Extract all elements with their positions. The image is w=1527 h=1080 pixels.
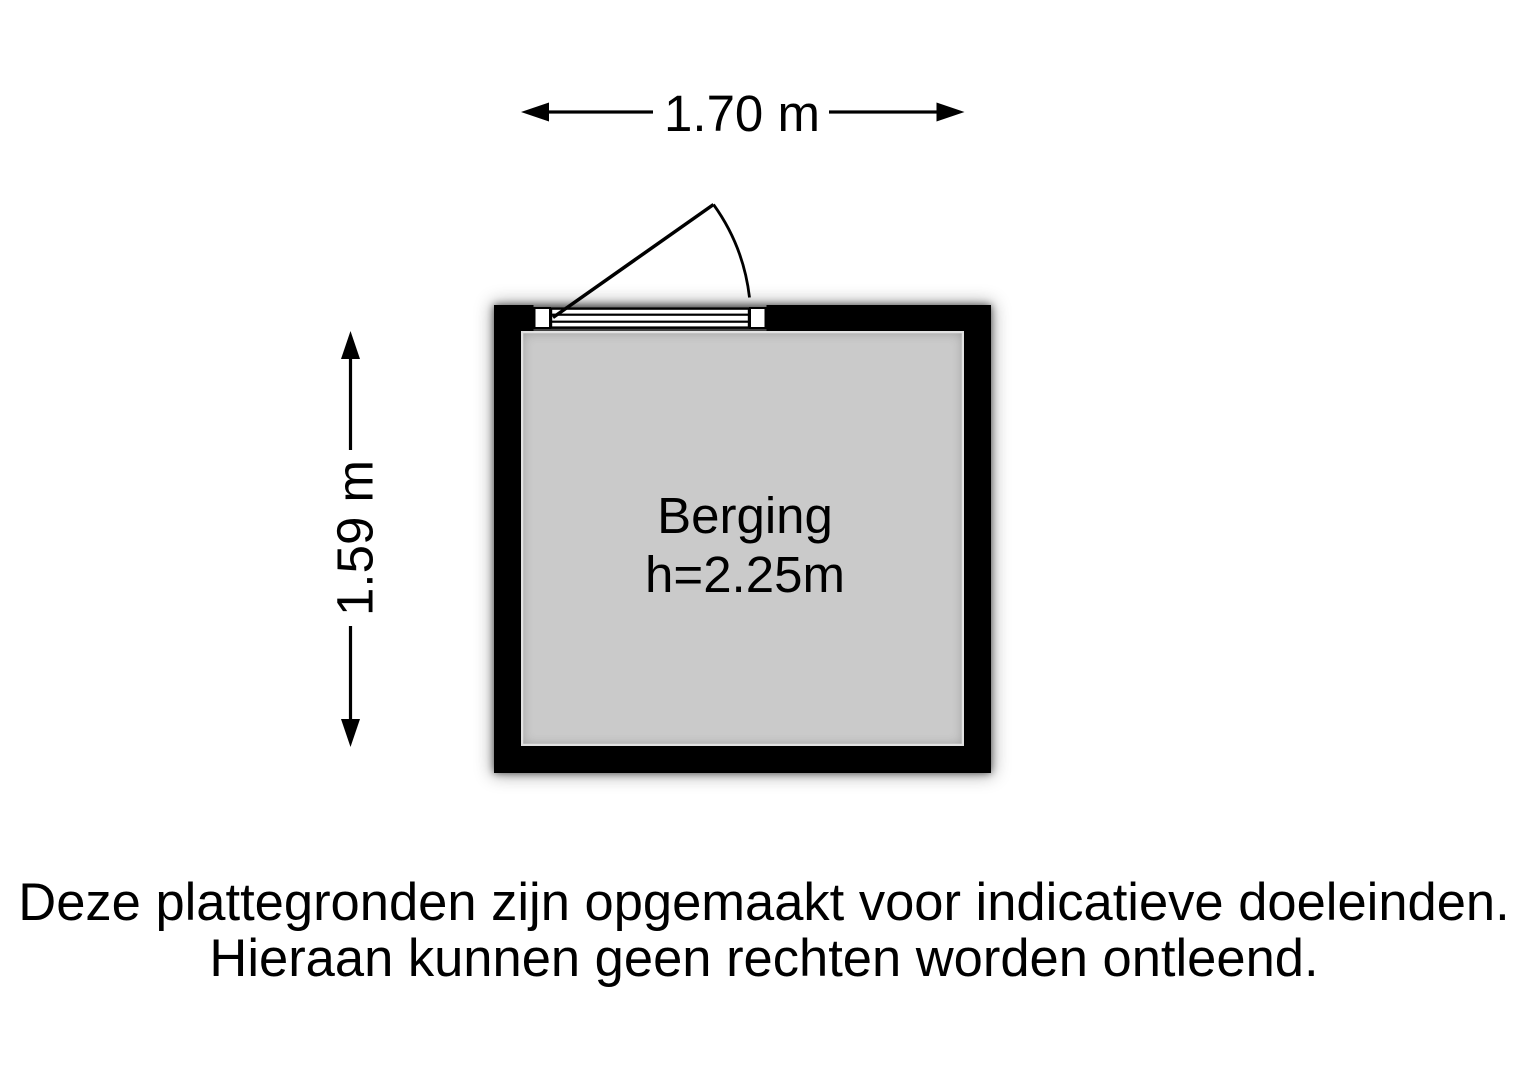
svg-text:1.70 m: 1.70 m — [664, 85, 820, 142]
svg-text:Berging: Berging — [657, 487, 833, 544]
svg-text:Deze plattegronden zijn opgema: Deze plattegronden zijn opgemaakt voor i… — [18, 873, 1509, 932]
svg-text:1.59 m: 1.59 m — [327, 460, 384, 616]
svg-text:h=2.25m: h=2.25m — [645, 546, 845, 603]
svg-text:Hieraan kunnen geen rechten wo: Hieraan kunnen geen rechten worden ontle… — [209, 929, 1318, 988]
